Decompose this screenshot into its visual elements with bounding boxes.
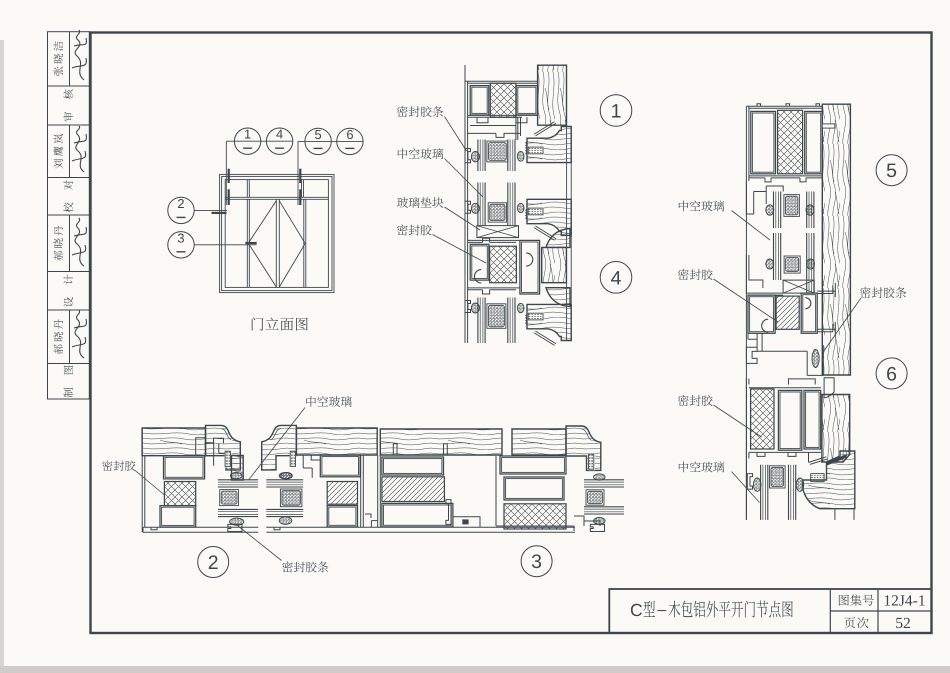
svg-text:3: 3 [177, 230, 184, 245]
svg-text:4: 4 [276, 127, 283, 142]
svg-text:1: 1 [611, 101, 622, 123]
svg-text:2: 2 [177, 196, 184, 211]
svg-text:2: 2 [208, 552, 219, 574]
svg-text:3: 3 [531, 551, 542, 573]
svg-text:4: 4 [611, 267, 622, 289]
svg-text:6: 6 [346, 127, 353, 142]
svg-text:5: 5 [315, 127, 322, 142]
svg-text:1: 1 [244, 127, 251, 142]
svg-text:5: 5 [886, 160, 897, 182]
svg-text:52: 52 [895, 615, 911, 632]
svg-text:C: C [630, 600, 643, 620]
svg-text:6: 6 [886, 363, 897, 385]
svg-text:12J4-1: 12J4-1 [883, 593, 925, 610]
